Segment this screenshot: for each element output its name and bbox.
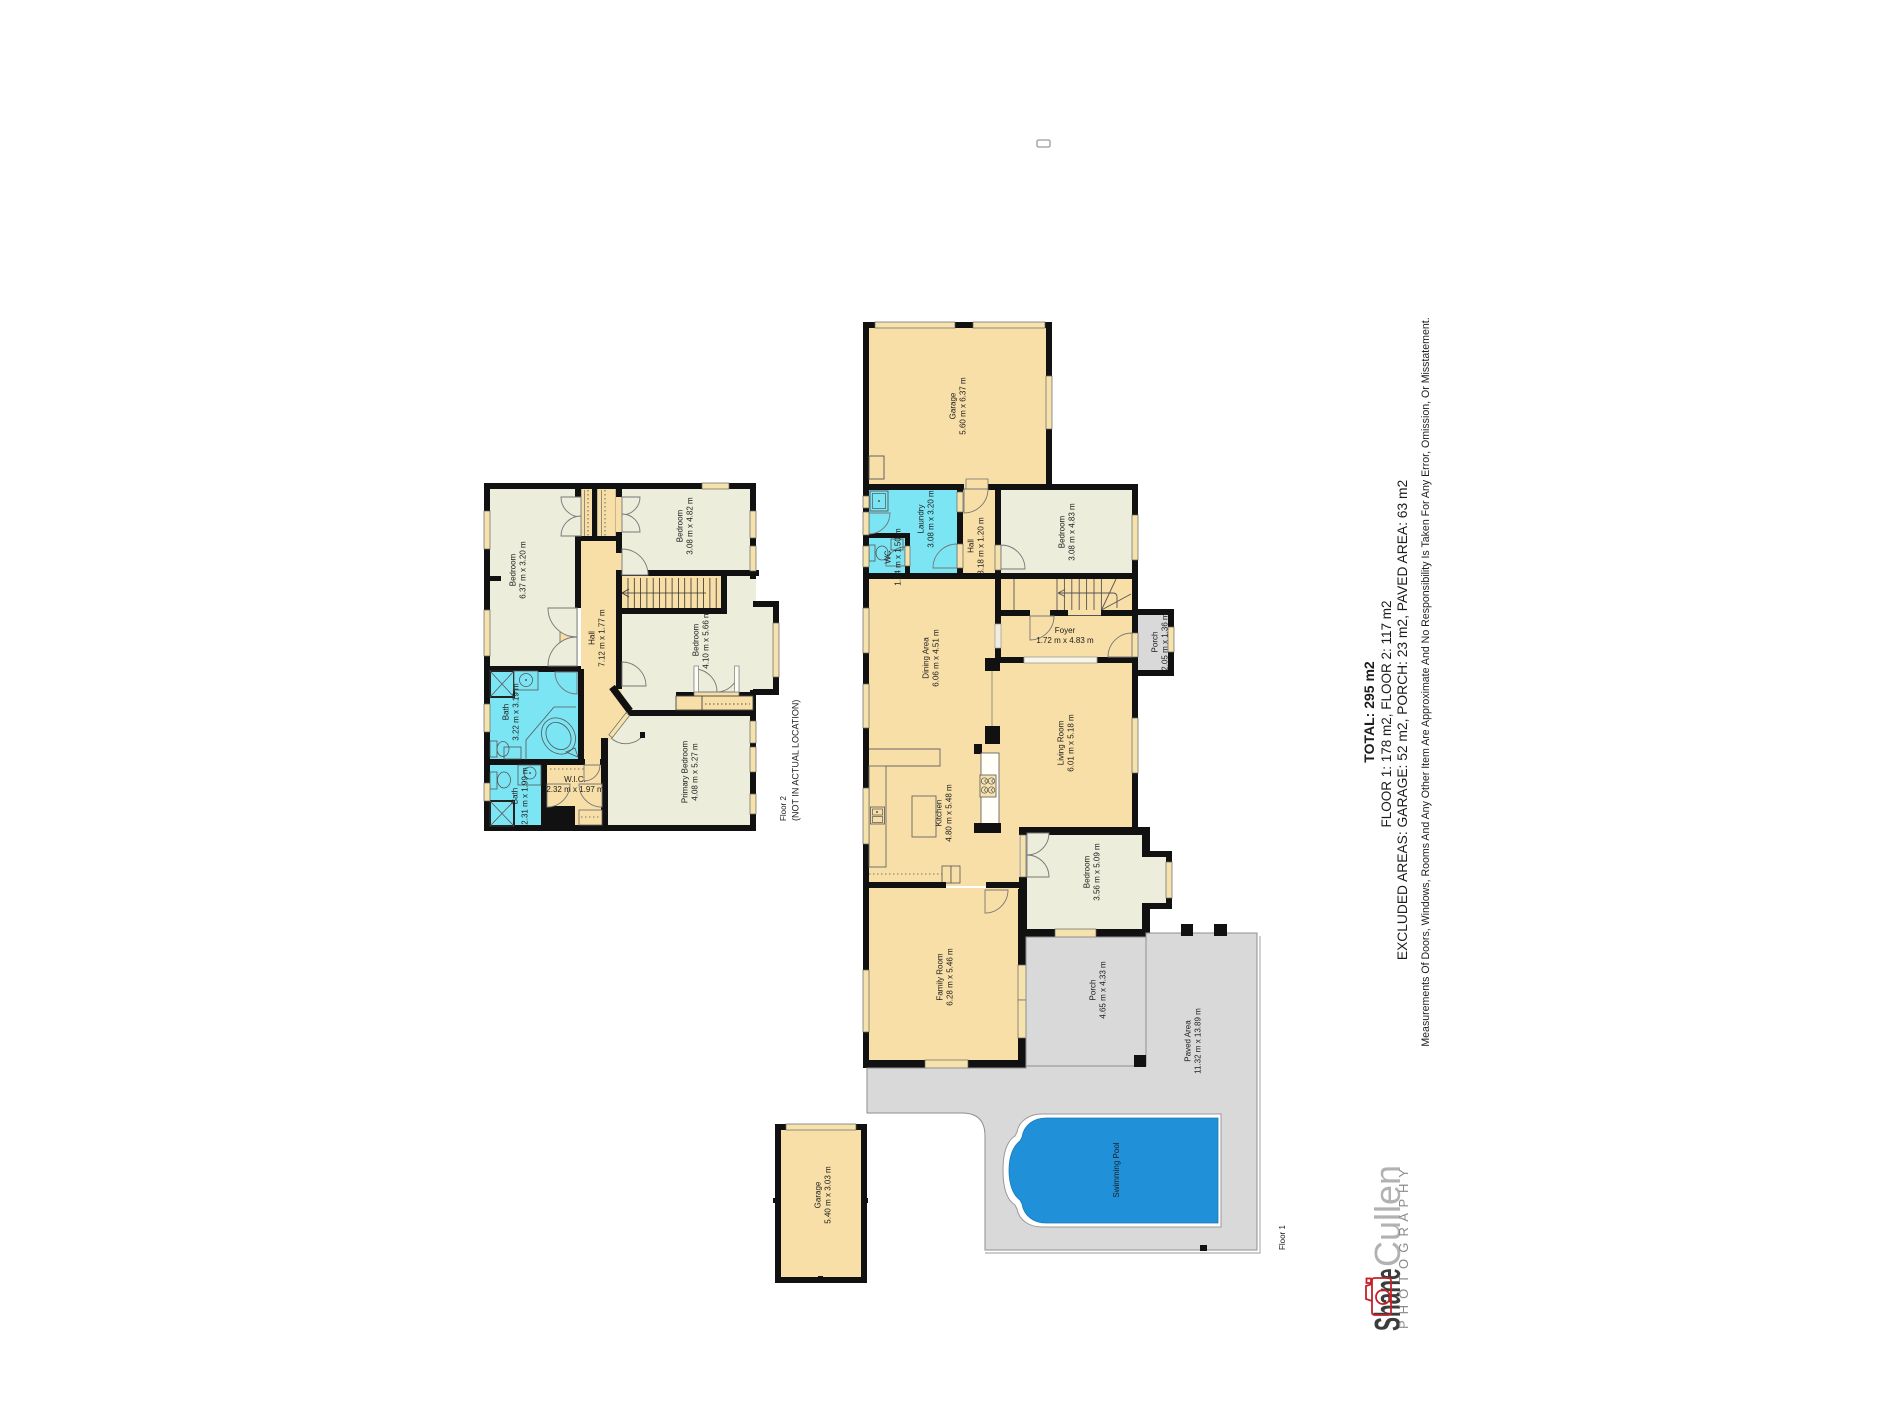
svg-text:(NOT IN ACTUAL LOCATION): (NOT IN ACTUAL LOCATION) bbox=[791, 700, 801, 821]
svg-text:Floor 1: Floor 1 bbox=[1278, 1225, 1287, 1250]
svg-text:Primary Bedroom4.08 m x 5.27 m: Primary Bedroom4.08 m x 5.27 m bbox=[681, 741, 700, 804]
svg-text:Measurements Of Doors, Windows: Measurements Of Doors, Windows, Rooms An… bbox=[1420, 317, 1432, 1046]
svg-text:FLOOR 1: 178 m2, FLOOR 2: 117: FLOOR 1: 178 m2, FLOOR 2: 117 m2 bbox=[1379, 600, 1394, 827]
svg-text:Living Room6.01 m x 5.18 m: Living Room6.01 m x 5.18 m bbox=[1057, 714, 1076, 772]
svg-text:EXCLUDED AREAS: GARAGE: 52 m2,: EXCLUDED AREAS: GARAGE: 52 m2, PORCH: 23… bbox=[1395, 480, 1410, 960]
svg-text:Family Room6.28 m x 5.46 m: Family Room6.28 m x 5.46 m bbox=[936, 948, 955, 1006]
svg-text:Dining Area6.06 m x 4.51 m: Dining Area6.06 m x 4.51 m bbox=[922, 629, 941, 687]
svg-text:Swimming Pool: Swimming Pool bbox=[1112, 1142, 1121, 1197]
svg-text:TOTAL: 295 m2: TOTAL: 295 m2 bbox=[1361, 661, 1377, 763]
svg-text:Floor 2: Floor 2 bbox=[779, 796, 788, 821]
